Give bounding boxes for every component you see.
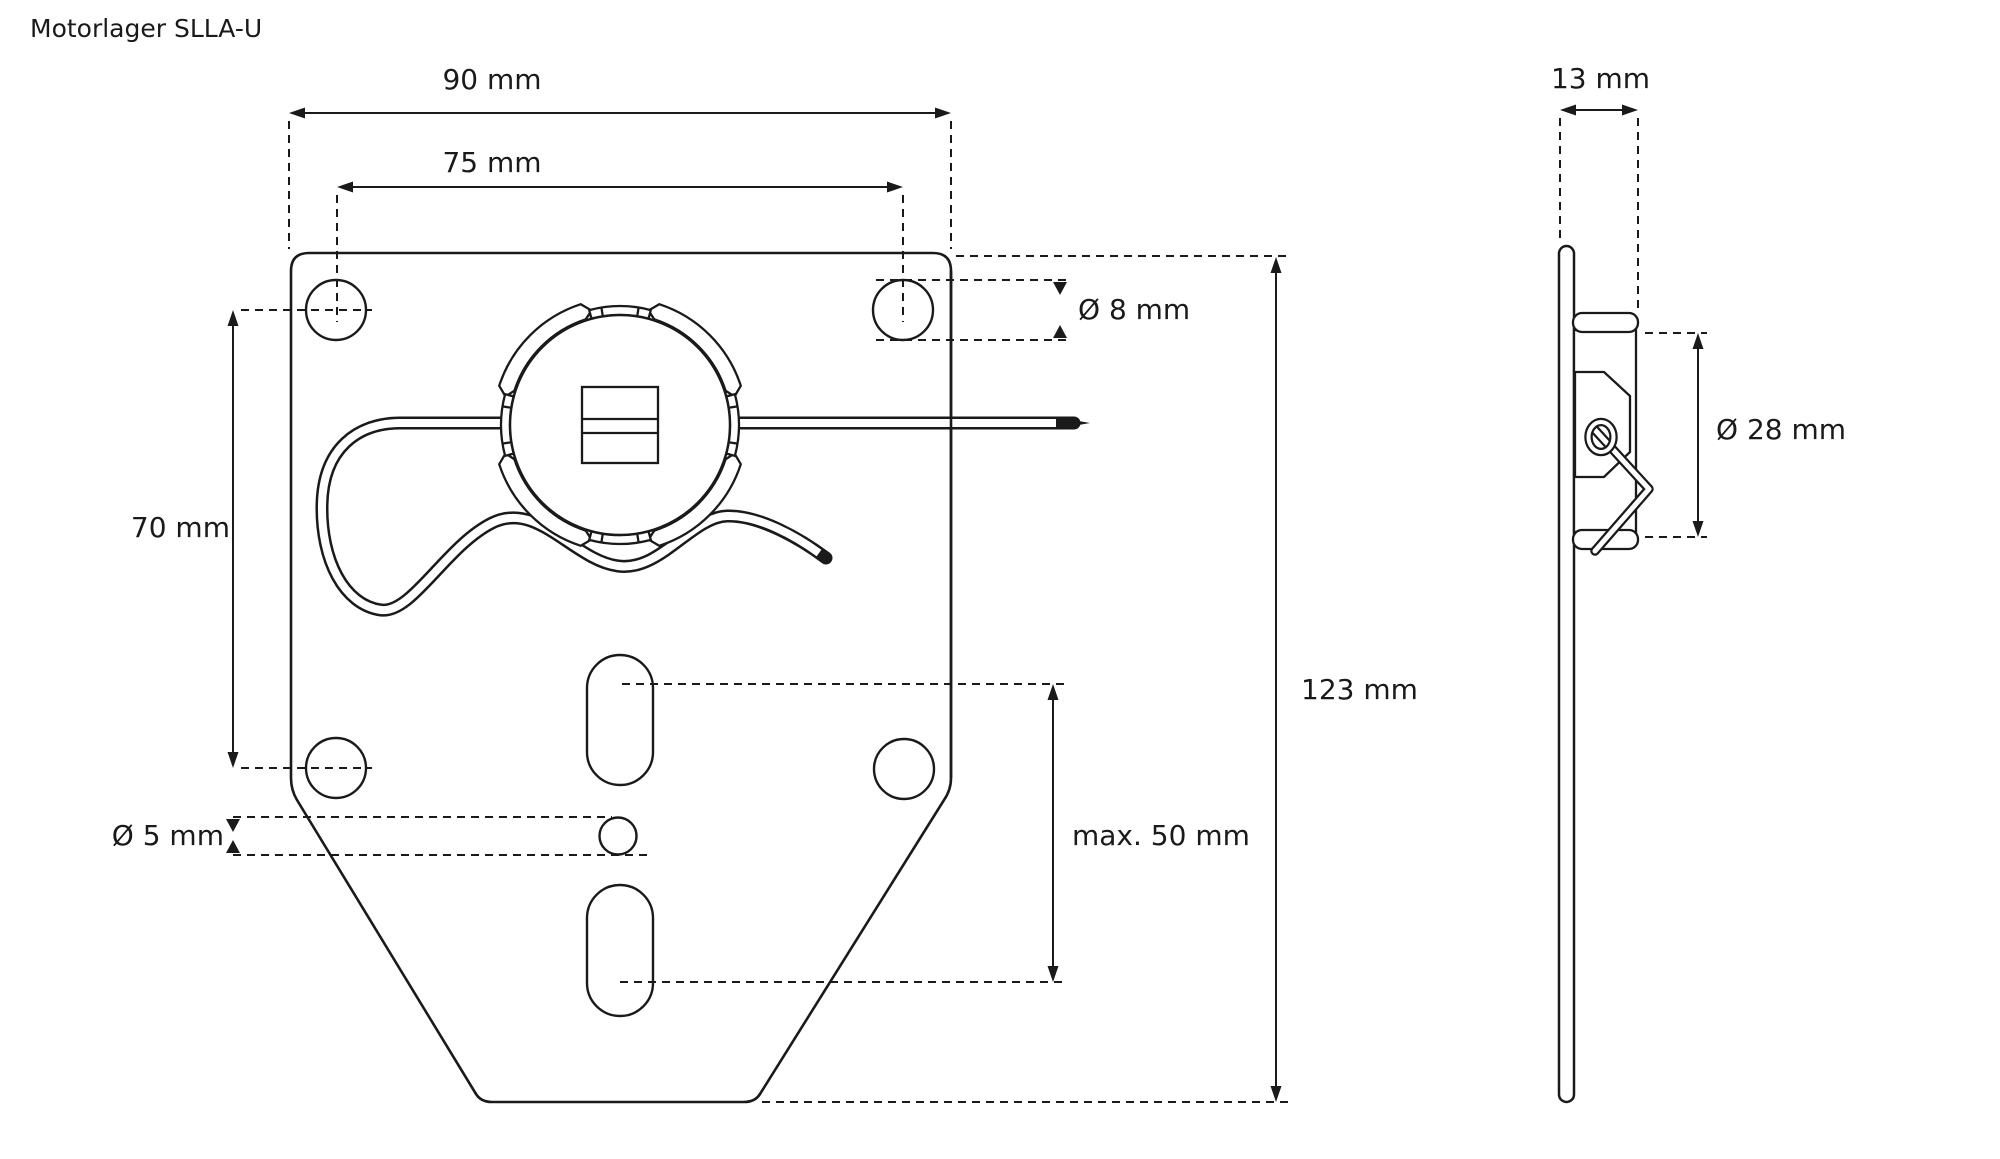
dimension-90mm xyxy=(289,108,951,250)
dim-label-dia5mm: Ø 5 mm xyxy=(85,819,224,852)
drawing-linework xyxy=(0,0,2000,1159)
technical-drawing: Motorlager SLLA-U 90 mm 75 mm Ø 8 mm 70 … xyxy=(0,0,2000,1159)
side-plate-strip xyxy=(1559,246,1574,1102)
drawing-title: Motorlager SLLA-U xyxy=(30,14,262,44)
side-view xyxy=(1559,246,1649,1102)
dim-label-dia28mm: Ø 28 mm xyxy=(1716,413,1846,446)
dim-label-90mm: 90 mm xyxy=(400,63,584,96)
square-drive-opening xyxy=(582,387,658,463)
dim-label-dia8mm: Ø 8 mm xyxy=(1078,293,1190,326)
dim-label-max50mm: max. 50 mm xyxy=(1072,819,1250,852)
dimension-dia28mm xyxy=(1645,333,1707,537)
dim-label-13mm: 13 mm xyxy=(1529,62,1672,95)
dim-label-123mm: 123 mm xyxy=(1301,673,1418,706)
dim-label-75mm: 75 mm xyxy=(400,146,584,179)
dim-label-70mm: 70 mm xyxy=(95,511,230,544)
